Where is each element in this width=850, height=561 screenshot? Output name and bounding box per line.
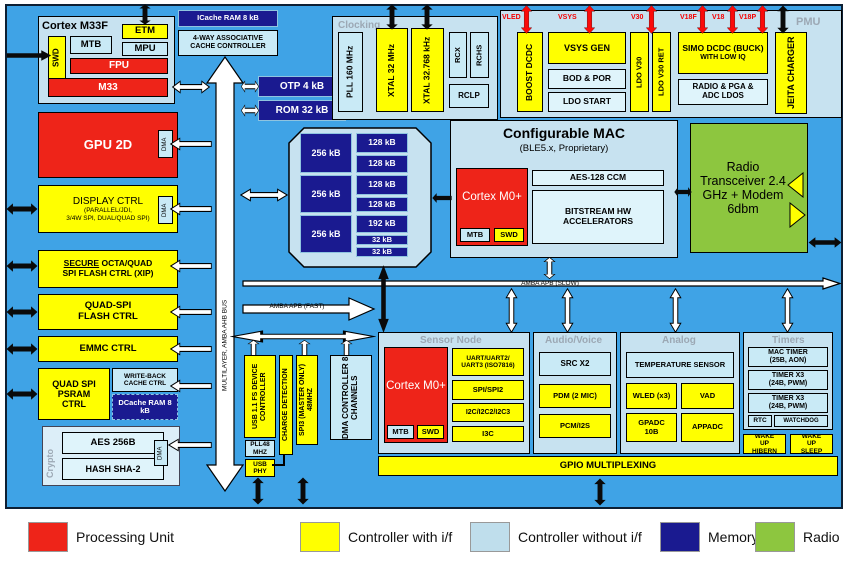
spi3-pin-arrow — [296, 477, 310, 505]
swd-pin-arrow — [6, 49, 52, 62]
simo-dcdc-line1: SIMO DCDC (BUCK) — [682, 44, 763, 54]
mpu-block: MPU — [122, 42, 168, 56]
memory-cell: 32 kB — [356, 235, 408, 245]
quadspi-psram-block: QUAD SPI PSRAM CTRL — [38, 368, 110, 420]
simo-dcdc-line2: WITH LOW IQ — [700, 54, 746, 62]
bus-display-arrow — [170, 202, 212, 216]
m33-bus-arrow — [172, 80, 210, 94]
i3c-block: I3C — [452, 426, 524, 442]
usb-controller-block: USB 1.1 FS DEVICE CONTROLLER — [244, 355, 276, 438]
charge-usbphy-wire — [283, 455, 285, 466]
memory-cell: 256 kB — [300, 215, 352, 253]
display-pin-arrow — [6, 202, 38, 216]
bus-memory-arrow — [240, 188, 288, 202]
rail-label-v18p: V18P — [739, 14, 756, 21]
ldo-start-block: LDO START — [548, 92, 626, 112]
legend-swatch-processing-unit — [28, 522, 68, 552]
display-ctrl-title: DISPLAY CTRL — [73, 196, 143, 207]
legend-swatch-controller-no-if — [470, 522, 510, 552]
bus-crypto-arrow — [168, 438, 212, 452]
legend-label-processing-unit: Processing Unit — [76, 522, 174, 552]
usb-phy-block: USB PHY — [245, 459, 275, 477]
xtal-32khz-block: XTAL 32.768 kHz — [411, 28, 444, 112]
m33-core-block: M33 — [48, 78, 168, 97]
psram-pin-arrow — [6, 387, 38, 401]
v18p-rail-arrow — [756, 5, 769, 34]
bus-emmc-arrow — [170, 342, 212, 356]
rtc-block: RTC — [748, 415, 772, 427]
cache-controller-block: 4-WAY ASSOCIATIVE CACHE CONTROLLER — [178, 30, 278, 56]
display-ctrl-sub1: (PARALLEL/JDI, — [84, 207, 132, 214]
fpu-block: FPU — [70, 58, 168, 74]
pmu-title: PMU — [796, 16, 820, 28]
timers-title: Timers — [772, 335, 805, 346]
vsys-gen-block: VSYS GEN — [548, 32, 626, 64]
rail-label-vsys: VSYS — [558, 14, 577, 21]
pdm-block: PDM (2 MIC) — [539, 384, 611, 408]
legend-swatch-radio — [755, 522, 795, 552]
mtb-block: MTB — [70, 36, 112, 54]
crypto-title: Crypto — [45, 434, 55, 478]
radio-antenna-arrow — [808, 236, 842, 249]
slow-sensor-arrow — [505, 288, 518, 333]
uart-block: UART/UART2/ UART3 (ISO7816) — [452, 348, 524, 376]
secure-pin-arrow — [6, 259, 38, 273]
slow-audio-arrow — [561, 288, 574, 333]
secure-rest-word: OCTA/QUAD — [99, 258, 152, 268]
pll48-block: PLL48 MHZ — [245, 440, 275, 457]
sensor-swd-block: SWD — [417, 425, 444, 439]
gpadc-block: GPADC 10B — [626, 413, 677, 442]
quadspi-flash-block: QUAD-SPI FLASH CTRL — [38, 294, 178, 330]
secure-octaspi-line2: SPI FLASH CTRL (XIP) — [63, 269, 154, 279]
spi-block: SPI/SPI2 — [452, 380, 524, 400]
gpu-2d-block: GPU 2D — [38, 112, 178, 178]
jeita-charger-block: JEITA CHARGER — [775, 32, 807, 114]
ldo-v30-block: LDO V30 — [630, 32, 649, 112]
display-ctrl-block: DISPLAY CTRL (PARALLEL/JDI, 3/4W SPI, DU… — [38, 185, 178, 233]
rail-label-v30: V30 — [631, 14, 643, 21]
usb-pin-arrow — [251, 477, 265, 505]
bitstream-hw-block: BITSTREAM HW ACCELERATORS — [532, 190, 664, 244]
wakeup-hibern-block: WAKE UP HIBERN — [743, 434, 786, 454]
soc-block-diagram: MULTILAYER, AMBA AHB BUS Cortex M33F ETM… — [0, 0, 850, 561]
hash-sha2-block: HASH SHA-2 — [62, 458, 164, 480]
legend-label-controller-no-if: Controller without i/f — [518, 522, 642, 552]
xtal-m-pin-arrow — [385, 4, 399, 30]
crypto-dma-tag: DMA — [154, 440, 168, 466]
mac-radio-arrow — [674, 186, 692, 198]
spi3-block: SPI3 (MASTER ONLY) 48MHZ — [296, 355, 318, 445]
display-ctrl-sub2: 3/4W SPI, DUAL/QUAD SPI) — [66, 215, 149, 222]
timer-x3-block: TIMER X3 (24B, PWM) — [748, 370, 828, 390]
dcache-ram-block: DCache RAM 8 kB — [112, 394, 178, 420]
slow-timers-arrow — [781, 288, 794, 333]
rail-label-v18f: V18F — [680, 14, 697, 21]
watchdog-block: WATCHDOG — [774, 415, 828, 427]
bus-gpu-arrow — [170, 137, 212, 151]
rail-label-v18: V18 — [712, 14, 724, 21]
radio-rx-triangle-icon — [787, 172, 804, 198]
memory-cell: 128 kB — [356, 175, 408, 195]
icache-ram-block: ICache RAM 8 kB — [178, 10, 278, 27]
gpio-pin-arrow — [593, 478, 607, 506]
boost-dcdc-block: BOOST DCDC — [517, 32, 543, 112]
memory-cell: 128 kB — [356, 197, 408, 212]
mac-subtitle: (BLE5.x, Proprietary) — [450, 143, 678, 156]
src-x2-block: SRC X2 — [539, 352, 611, 376]
legend-label-controller-if: Controller with i/f — [348, 522, 452, 552]
wakeup-sleep-block: WAKE UP SLEEP — [790, 434, 833, 454]
emmc-ctrl-block: EMMC CTRL — [38, 336, 178, 362]
radio-tx-triangle-icon — [789, 202, 806, 228]
vad-block: VAD — [681, 383, 734, 409]
aes-128-ccm-block: AES-128 CCM — [532, 170, 664, 186]
timer-x3-block: TIMER X3 (24B, PWM) — [748, 393, 828, 413]
i2c-block: I2C/I2C2/I2C3 — [452, 403, 524, 422]
mac-slow-arrow — [543, 257, 556, 279]
pll160-block: PLL 160 MHz — [338, 32, 363, 112]
rcx-block: RCX — [449, 32, 467, 78]
mac-timer-block: MAC TIMER (25B, AON) — [748, 347, 828, 367]
vled-rail-arrow — [520, 5, 533, 34]
mac-memory-arrow — [432, 192, 452, 204]
slow-analog-arrow — [669, 288, 682, 333]
pcm-i2s-block: PCM/I2S — [539, 414, 611, 438]
v18-rail-arrow — [726, 5, 739, 34]
memory-cell: 128 kB — [356, 133, 408, 153]
secure-octaspi-block: SECURE OCTA/QUAD SPI FLASH CTRL (XIP) — [38, 250, 178, 288]
wled-block: WLED (x3) — [626, 383, 677, 409]
analog-title: Analog — [662, 335, 696, 346]
legend-swatch-memory-cell — [660, 522, 700, 552]
v18f-rail-arrow — [696, 5, 709, 34]
bus-rom-arrow — [241, 104, 259, 117]
audio-voice-title: Audio/Voice — [545, 335, 602, 346]
sensor-mtb-block: MTB — [387, 425, 414, 439]
secure-underlined-word: SECURE — [64, 258, 99, 268]
memory-cell: 192 kB — [356, 215, 408, 233]
apb-fast-label: AMBA APB (FAST) — [252, 300, 342, 313]
gpio-multiplexing-block: GPIO MULTIPLEXING — [378, 456, 838, 476]
sensor-node-title: Sensor Node — [420, 335, 482, 346]
rchs-block: RCHS — [470, 32, 489, 78]
quadspi-line2: FLASH CTRL — [78, 312, 138, 323]
pmu-pin-arrow — [776, 5, 790, 34]
clocking-title: Clocking — [338, 20, 380, 31]
mac-swd-block: SWD — [494, 228, 524, 242]
bod-por-block: BOD & POR — [548, 69, 626, 89]
dma-controller-block: DMA CONTROLLER 8 CHANNELS — [330, 355, 372, 440]
memory-cell: 128 kB — [356, 155, 408, 173]
aes-256-block: AES 256B — [62, 432, 164, 454]
memory-cell: 32 kB — [356, 247, 408, 257]
mac-mtb-block: MTB — [460, 228, 490, 242]
radio-ldos-block: RADIO & PGA & ADC LDOS — [678, 79, 768, 105]
mac-title: Configurable MAC — [450, 125, 678, 143]
xtal-32mhz-block: XTAL 32 MHz — [376, 28, 408, 112]
bus-secure-arrow — [170, 259, 212, 273]
etm-pin-arrow — [138, 4, 152, 25]
v30-rail-arrow — [645, 5, 658, 34]
temperature-sensor-block: TEMPERATURE SENSOR — [626, 352, 734, 378]
memory-cell: 256 kB — [300, 175, 352, 213]
quadspi-pin-arrow — [6, 305, 38, 319]
simo-dcdc-block: SIMO DCDC (BUCK) WITH LOW IQ — [678, 32, 768, 74]
cortex-m33f-title: Cortex M33F — [42, 19, 112, 33]
charge-detection-block: CHARGE DETECTION — [279, 355, 293, 455]
vsys-rail-arrow — [583, 5, 596, 34]
ahb-bus-label: MULTILAYER, AMBA AHB BUS — [216, 210, 234, 480]
bus-psram-arrow — [170, 379, 212, 393]
legend-swatch-controller-if — [300, 522, 340, 552]
ldo-v30-ret-block: LDO V30 RET — [652, 32, 671, 112]
rail-label-vled: VLED — [502, 14, 521, 21]
rclp-block: RCLP — [449, 84, 489, 108]
memory-cell: 256 kB — [300, 133, 352, 173]
xtal-k-pin-arrow — [420, 4, 434, 30]
etm-block: ETM — [122, 24, 168, 39]
memory-sensor-arrow — [377, 264, 390, 334]
appadc-block: APPADC — [681, 413, 734, 442]
bus-otp-arrow — [241, 80, 259, 93]
legend-label-radio: Radio — [803, 522, 840, 552]
emmc-pin-arrow — [6, 342, 38, 356]
bus-quadspi-arrow — [170, 305, 212, 319]
writeback-cache-block: WRITE-BACK CACHE CTRL — [112, 368, 178, 392]
